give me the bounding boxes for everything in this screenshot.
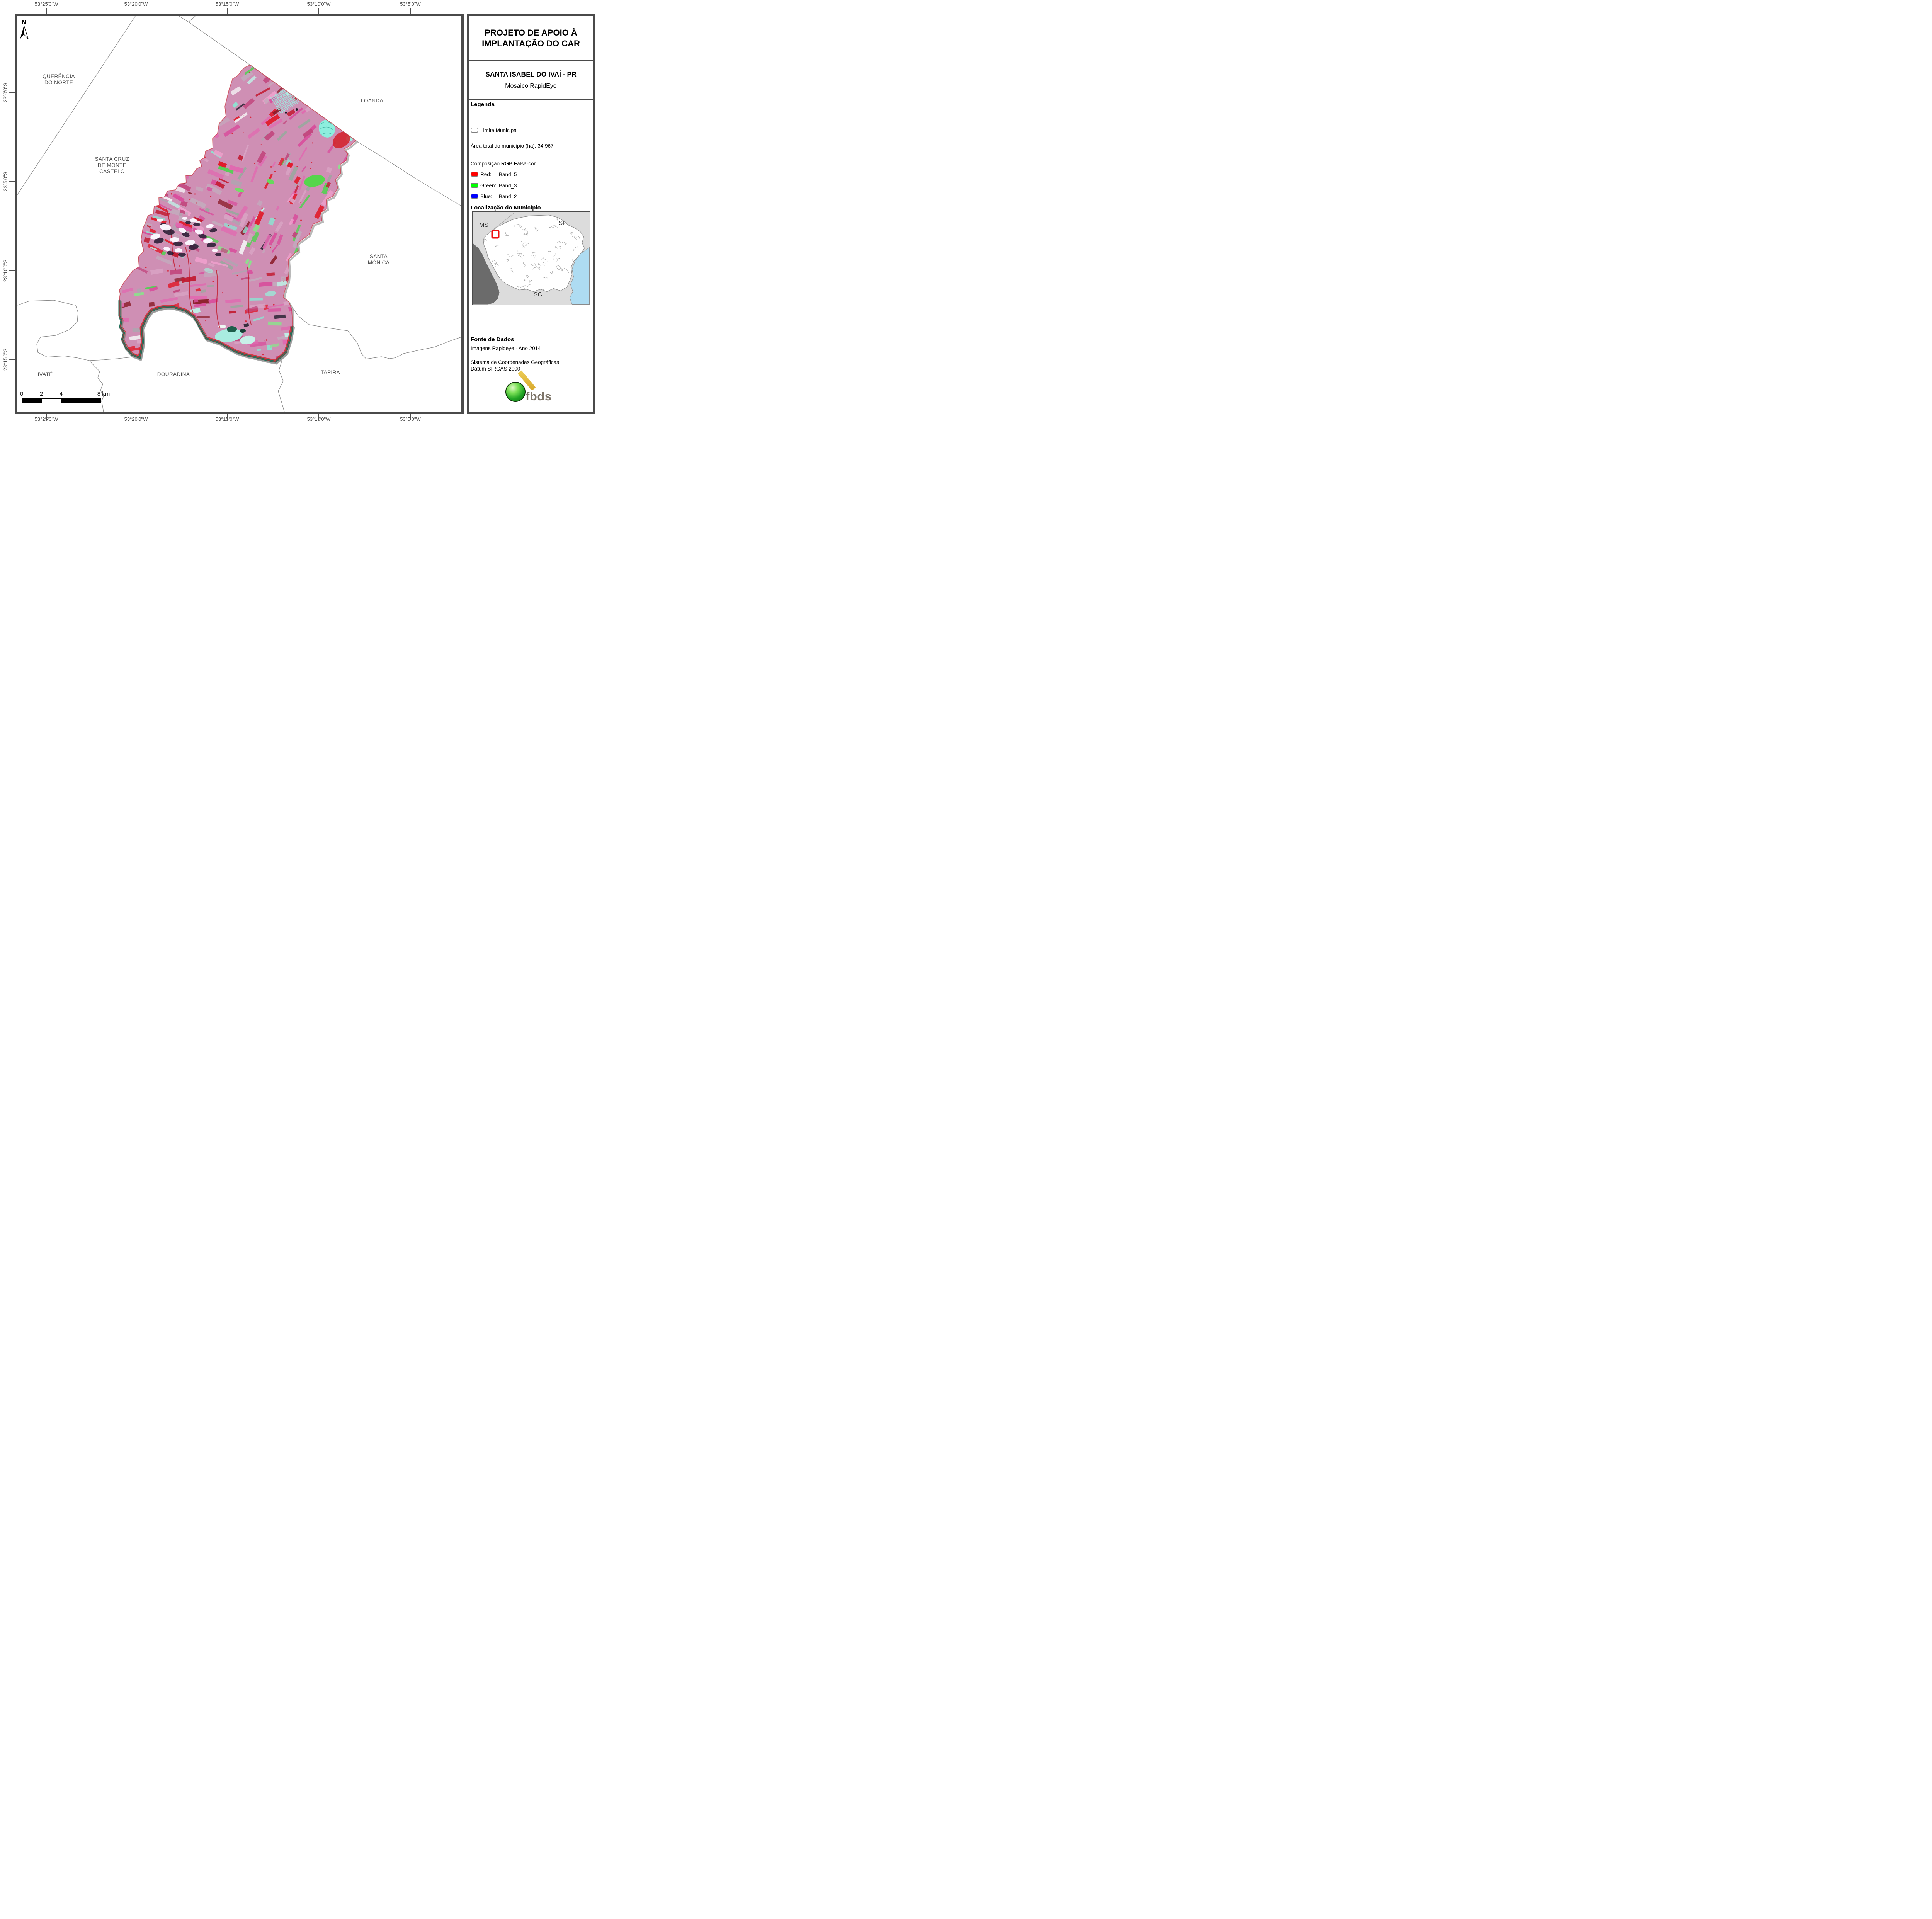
coord-tick-bottom <box>318 414 319 420</box>
coord-tick-bottom <box>227 414 228 420</box>
neighbor-label-line: QUERÊNCIA <box>16 73 101 80</box>
source-line-crs: Sistema de Coordenadas Geográficas <box>471 359 559 365</box>
coord-label-top: 53°5'0"W <box>387 1 434 7</box>
coord-tick-left <box>9 359 15 360</box>
neighbor-label-line: IVATÉ <box>3 371 88 378</box>
neighbor-label-ivate: IVATÉ <box>3 371 88 378</box>
neighbor-label-santa-monica: SANTAMÔNICA <box>336 253 421 266</box>
legend-band-channel: Red: <box>480 172 492 177</box>
coord-tick-left <box>9 270 15 271</box>
neighbor-label-douradina: DOURADINA <box>131 371 216 378</box>
coord-label-top: 53°10'0"W <box>296 1 342 7</box>
panel-divider <box>469 99 593 100</box>
legend-band-name: Band_2 <box>499 194 517 199</box>
coord-label-left: 23°5'0"S <box>3 166 9 197</box>
fbds-logo-text: fbds <box>526 390 551 403</box>
project-title-line2: IMPLANTAÇÃO DO CAR <box>482 38 580 49</box>
location-header: Localização do Município <box>471 204 541 211</box>
source-line-datum: Datum SIRGAS 2000 <box>471 366 520 372</box>
neighbor-label-line: DE MONTE <box>70 162 155 168</box>
neighbor-label-line: SANTA CRUZ <box>70 156 155 162</box>
area-total-text: Área total do município (ha): 34.967 <box>471 143 554 149</box>
legend-band-swatch <box>471 172 478 177</box>
neighbor-label-line: DOURADINA <box>131 371 216 378</box>
coord-label-top: 53°15'0"W <box>204 1 250 7</box>
coord-tick-bottom <box>410 414 411 420</box>
coord-label-top: 53°20'0"W <box>113 1 159 7</box>
legend-band-name: Band_3 <box>499 183 517 189</box>
inset-state-label-sc: SC <box>530 291 546 298</box>
inset-state-label-ms: MS <box>476 222 492 229</box>
inset-state-label-sp: SP <box>555 220 570 227</box>
coord-label-left: 23°0'0"S <box>3 77 9 108</box>
neighbor-label-line: MÔNICA <box>336 260 421 266</box>
neighbor-label-line: CASTELO <box>70 168 155 175</box>
legend-band-swatch <box>471 183 478 188</box>
limite-municipal-label: Limite Municipal <box>480 128 518 133</box>
legend-header: Legenda <box>471 101 495 108</box>
land-cover-patch <box>240 329 246 333</box>
composition-text: Composição RGB Falsa-cor <box>471 161 536 167</box>
coord-tick-top <box>410 8 411 14</box>
legend-band-name: Band_5 <box>499 172 517 177</box>
coord-label-top: 53°25'0"W <box>23 1 70 7</box>
municipality-name: SANTA ISABEL DO IVAÍ - PR <box>485 70 577 78</box>
map-layout-page: N 0248 km 53°25'0"W53°20'0"W53°15'0"W53°… <box>0 0 598 423</box>
coord-tick-top <box>318 8 319 14</box>
neighbor-label-line: TAPIRA <box>288 369 373 376</box>
north-arrow-icon <box>15 24 33 43</box>
legend-band-swatch <box>471 194 478 199</box>
neighbor-label-loanda: LOANDA <box>330 98 415 104</box>
coord-tick-left <box>9 92 15 93</box>
coord-tick-top <box>136 8 136 14</box>
fbds-logo-globe-icon <box>505 382 526 402</box>
neighbor-label-querencia-do-norte: QUERÊNCIADO NORTE <box>16 73 101 86</box>
neighbor-label-santa-cruz-de-monte-castelo: SANTA CRUZDE MONTECASTELO <box>70 156 155 175</box>
neighbor-label-line: SANTA <box>336 253 421 260</box>
scalebar <box>22 398 101 403</box>
map-subtitle: SANTA ISABEL DO IVAÍ - PR Mosaico RapidE… <box>471 61 590 99</box>
neighbor-label-line: LOANDA <box>330 98 415 104</box>
scalebar-number: 4 <box>49 391 73 397</box>
project-title-line1: PROJETO DE APOIO À <box>485 27 577 38</box>
coord-tick-bottom <box>46 414 47 420</box>
legend-band-channel: Green: <box>480 183 496 189</box>
neighbor-label-line: DO NORTE <box>16 80 101 86</box>
scalebar-segment <box>41 398 61 403</box>
source-header: Fonte de Dados <box>471 336 514 343</box>
coord-tick-left <box>9 181 15 182</box>
neighbor-label-tapira: TAPIRA <box>288 369 373 376</box>
coord-label-left: 23°15'0"S <box>3 344 9 375</box>
legend-band-channel: Blue: <box>480 194 492 199</box>
coord-label-left: 23°10'0"S <box>3 255 9 286</box>
land-cover-patch <box>227 326 237 332</box>
source-line-imagery: Imagens Rapideye - Ano 2014 <box>471 345 541 351</box>
coord-tick-top <box>227 8 228 14</box>
coord-tick-bottom <box>136 414 136 420</box>
project-title: PROJETO DE APOIO À IMPLANTAÇÃO DO CAR <box>471 17 590 60</box>
product-name: Mosaico RapidEye <box>505 83 556 90</box>
limite-municipal-swatch <box>471 128 478 133</box>
scalebar-number: 8 km <box>92 391 115 397</box>
coord-tick-top <box>46 8 47 14</box>
